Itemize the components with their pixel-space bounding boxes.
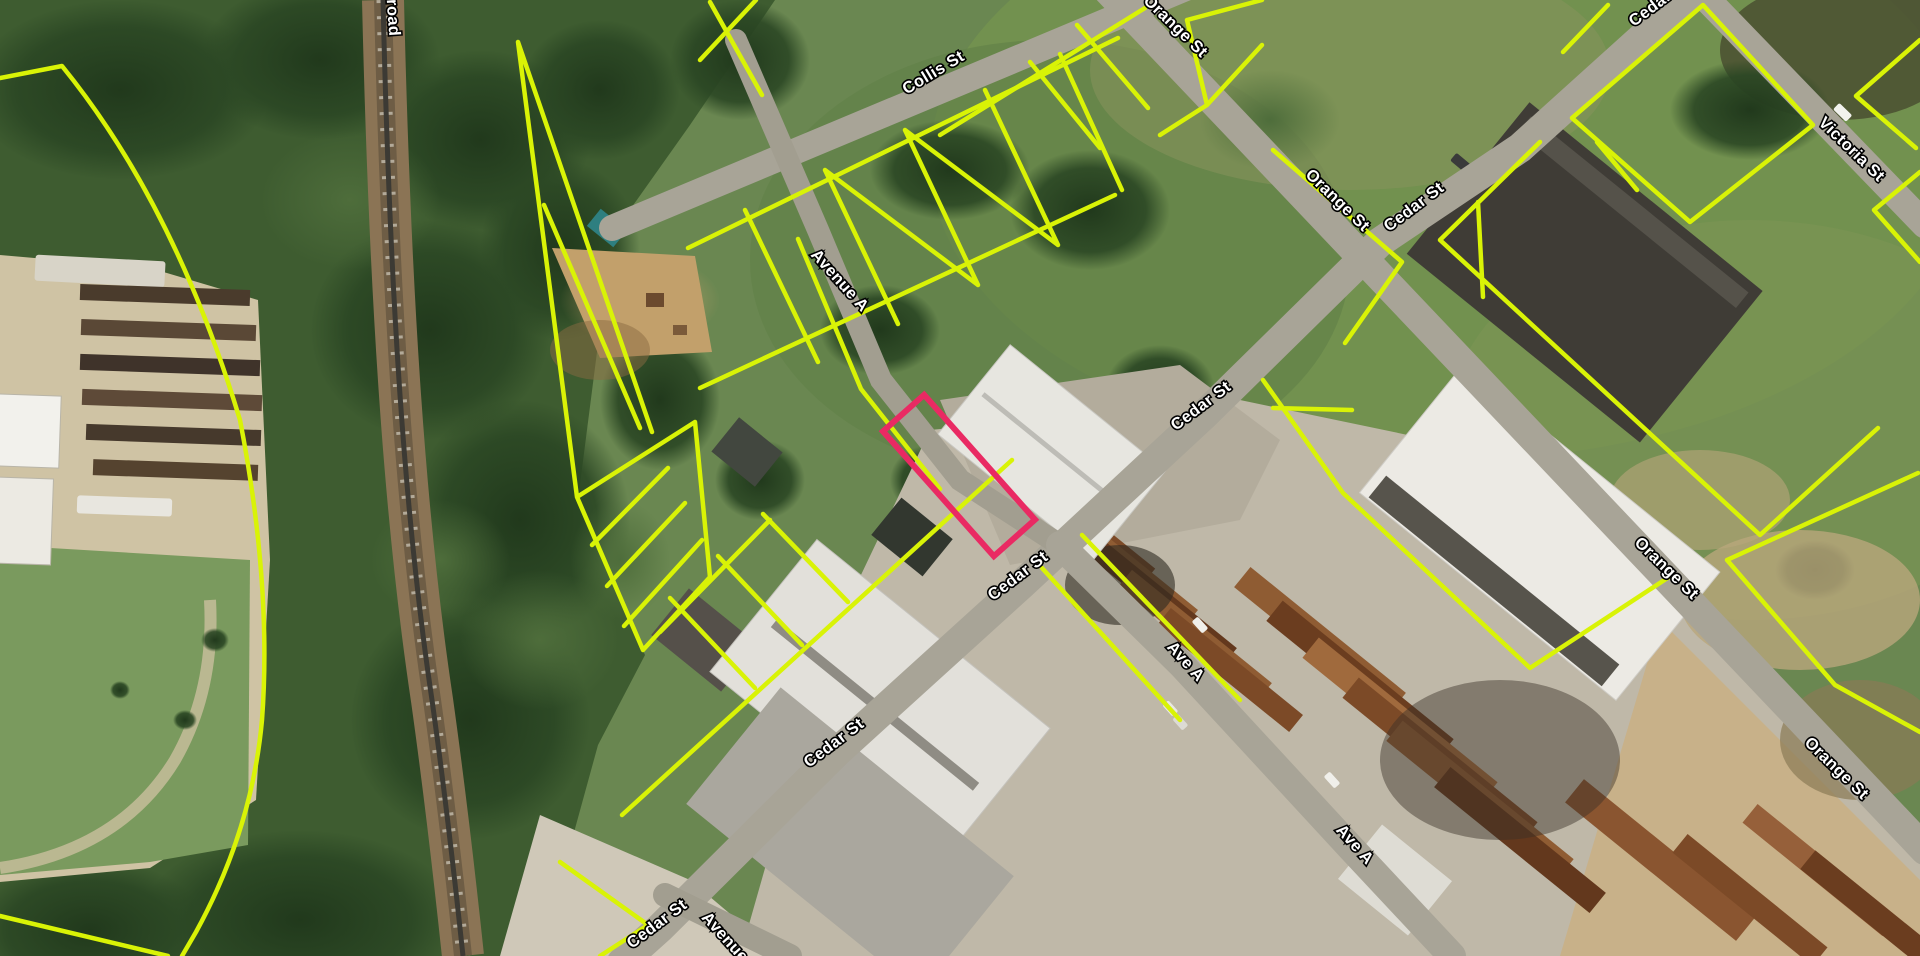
building <box>0 394 61 468</box>
aerial-map[interactable]: roadCollis StOrange StOrange StCedar StC… <box>0 0 1920 956</box>
street-label-road: road <box>383 0 404 37</box>
map-viewport[interactable]: roadCollis StOrange StOrange StCedar StC… <box>0 0 1920 956</box>
building <box>0 477 53 565</box>
left-industrial-yard <box>0 255 270 882</box>
